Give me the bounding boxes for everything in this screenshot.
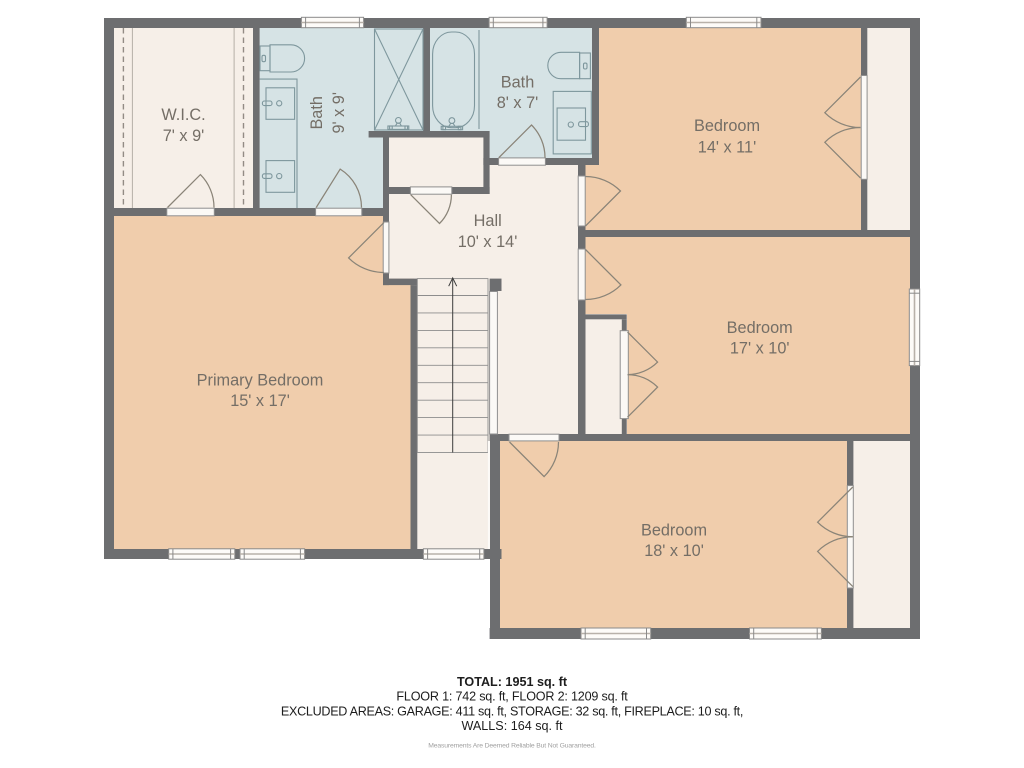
svg-text:15' x 17': 15' x 17' xyxy=(230,392,290,410)
svg-text:Measurements Are Deemed Reliab: Measurements Are Deemed Reliable But Not… xyxy=(428,743,596,750)
svg-text:Primary Bedroom: Primary Bedroom xyxy=(197,372,324,390)
svg-text:18' x 10': 18' x 10' xyxy=(644,542,704,560)
svg-text:8' x 7': 8' x 7' xyxy=(497,94,539,112)
svg-text:9' x 9': 9' x 9' xyxy=(330,92,348,134)
svg-text:17' x 10': 17' x 10' xyxy=(730,340,790,358)
svg-text:10' x 14': 10' x 14' xyxy=(458,233,518,251)
svg-text:FLOOR 1: 742 sq. ft, FLOOR 2:: FLOOR 1: 742 sq. ft, FLOOR 2: 1209 sq. f… xyxy=(396,690,628,704)
svg-text:Bedroom: Bedroom xyxy=(727,319,793,337)
svg-text:EXCLUDED AREAS: GARAGE: 411 sq: EXCLUDED AREAS: GARAGE: 411 sq. ft, STOR… xyxy=(281,704,743,718)
svg-text:Bedroom: Bedroom xyxy=(641,522,707,540)
svg-text:14' x 11': 14' x 11' xyxy=(698,138,756,156)
svg-text:Bath: Bath xyxy=(501,74,535,92)
svg-text:TOTAL: 1951 sq. ft: TOTAL: 1951 sq. ft xyxy=(457,675,568,689)
svg-text:7' x 9': 7' x 9' xyxy=(163,127,205,145)
svg-text:W.I.C.: W.I.C. xyxy=(161,106,205,124)
svg-text:Bath: Bath xyxy=(308,96,326,130)
svg-text:Hall: Hall xyxy=(474,212,502,230)
svg-text:Bedroom: Bedroom xyxy=(694,117,760,135)
svg-text:WALLS: 164 sq. ft: WALLS: 164 sq. ft xyxy=(461,719,563,733)
